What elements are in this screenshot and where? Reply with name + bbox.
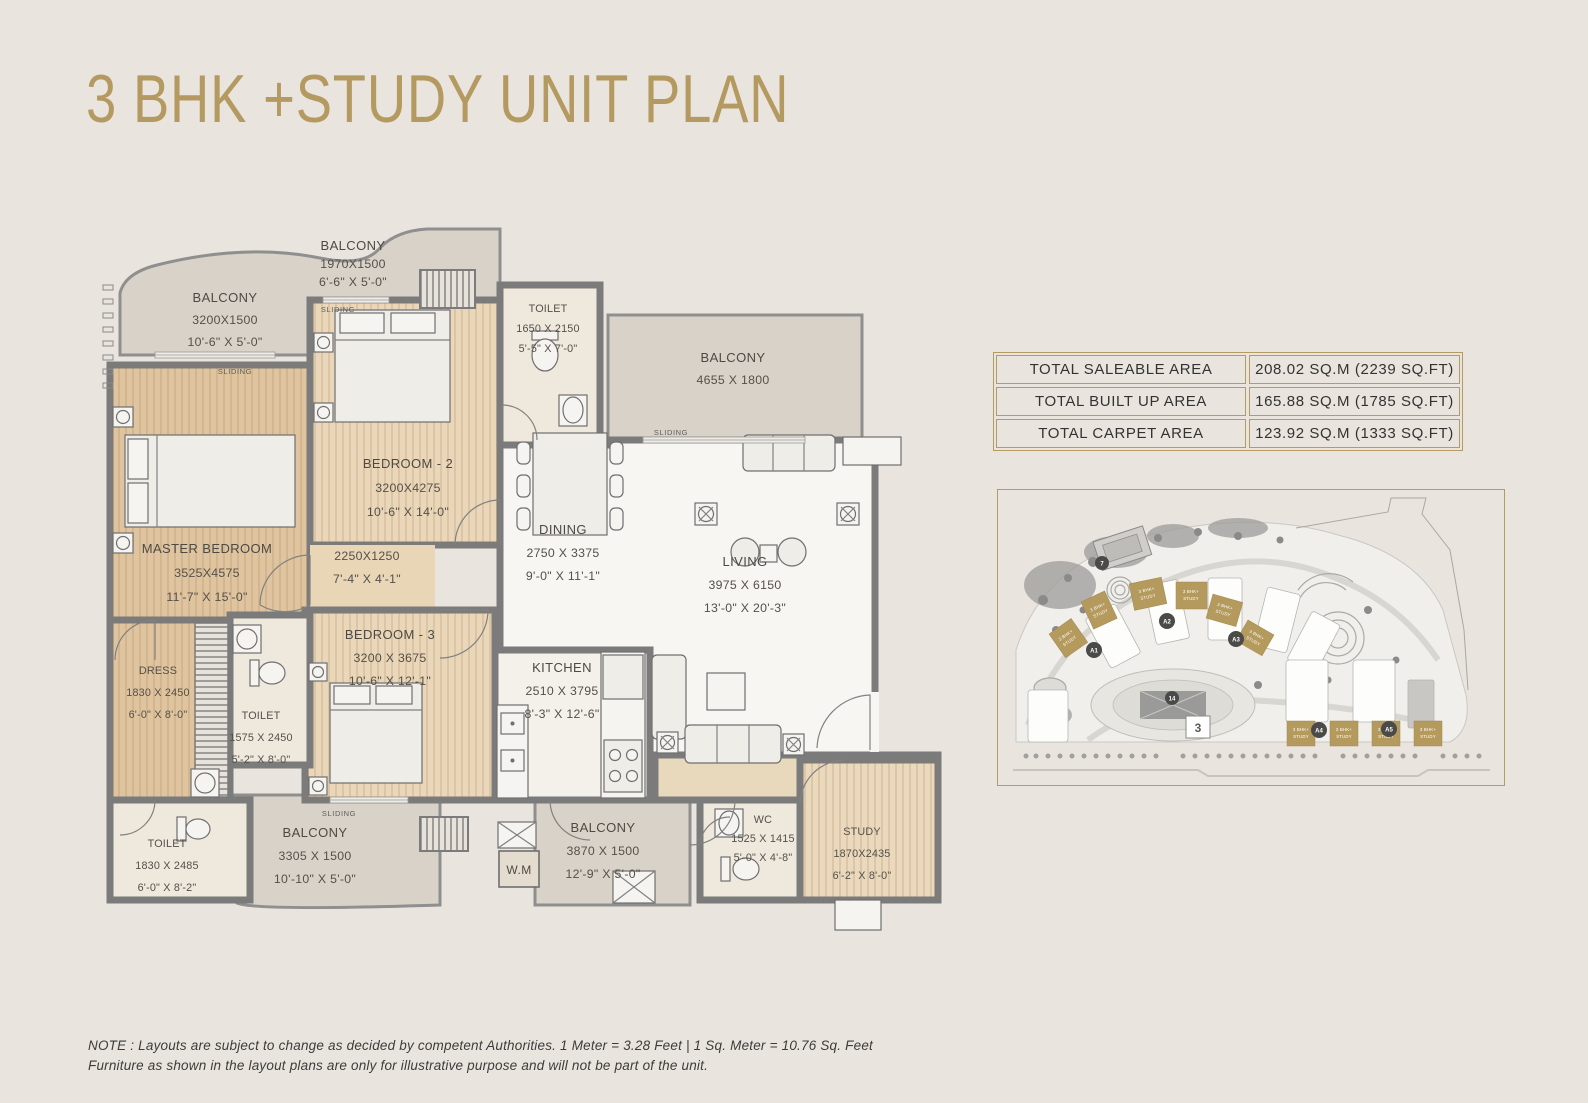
svg-text:MASTER BEDROOM: MASTER BEDROOM [142, 541, 273, 556]
svg-text:3305 X 1500: 3305 X 1500 [278, 849, 351, 863]
svg-text:7'-4" X 4'-1": 7'-4" X 4'-1" [333, 572, 401, 586]
page: { "page": { "title": "3 BHK +STUDY UNIT … [0, 0, 1588, 1103]
svg-text:1970X1500: 1970X1500 [320, 257, 386, 271]
svg-text:STUDY: STUDY [843, 826, 881, 838]
svg-text:STUDY: STUDY [1293, 734, 1309, 739]
svg-text:DINING: DINING [539, 522, 587, 537]
svg-text:6'-0" X 8'-2": 6'-0" X 8'-2" [138, 882, 197, 894]
svg-text:KITCHEN: KITCHEN [532, 660, 592, 675]
svg-text:10'-10" X 5'-0": 10'-10" X 5'-0" [274, 872, 356, 886]
svg-text:TOILET: TOILET [529, 303, 568, 315]
svg-text:TOILET: TOILET [242, 710, 281, 722]
svg-text:LIVING: LIVING [722, 554, 767, 569]
footnote-line1: NOTE : Layouts are subject to change as … [88, 1036, 873, 1056]
svg-text:11'-7" X 15'-0": 11'-7" X 15'-0" [166, 590, 247, 604]
svg-text:WC: WC [754, 814, 772, 826]
svg-text:1525 X 1415: 1525 X 1415 [731, 833, 794, 845]
svg-text:6'-6" X 5'-0": 6'-6" X 5'-0" [319, 275, 387, 289]
svg-text:SLIDING: SLIDING [218, 367, 252, 376]
footnote: NOTE : Layouts are subject to change as … [88, 1036, 873, 1077]
svg-text:BEDROOM - 3: BEDROOM - 3 [345, 627, 435, 642]
page-title: 3 BHK +STUDY UNIT PLAN [86, 60, 789, 138]
shaft-1 [498, 822, 536, 848]
svg-text:1830 X 2450: 1830 X 2450 [126, 687, 189, 699]
svg-text:14: 14 [1169, 697, 1176, 703]
road-edge [1013, 770, 1490, 776]
floor-plan-svg: BALCONY 3200X1500 10'-6" X 5'-0" BALCONY… [95, 205, 945, 940]
area-value: 208.02 SQ.M (2239 SQ.FT) [1249, 355, 1460, 384]
svg-text:1650 X 2150: 1650 X 2150 [516, 323, 579, 335]
svg-text:3525X4575: 3525X4575 [174, 566, 240, 580]
wm-label: W.M [506, 863, 531, 877]
svg-text:9'-0" X 11'-1": 9'-0" X 11'-1" [526, 569, 600, 583]
dining-table [517, 433, 623, 535]
area-summary-table: TOTAL SALEABLE AREA 208.02 SQ.M (2239 SQ… [993, 352, 1463, 451]
svg-text:TOILET: TOILET [148, 838, 187, 850]
site-plan-key-map: 3 BHK+STUDY 3 BHK+STUDY 3 BHK+STUDY 3 BH… [997, 489, 1505, 786]
svg-text:3 BHK+: 3 BHK+ [1420, 727, 1436, 732]
svg-text:10'-6" X 12'-1": 10'-6" X 12'-1" [349, 674, 431, 688]
area-label: TOTAL BUILT UP AREA [996, 387, 1246, 416]
svg-text:A2: A2 [1163, 620, 1171, 626]
area-value: 165.88 SQ.M (1785 SQ.FT) [1249, 387, 1460, 416]
svg-text:STUDY: STUDY [1336, 734, 1352, 739]
svg-text:10'-6" X 14'-0": 10'-6" X 14'-0" [367, 505, 449, 519]
svg-text:3: 3 [1195, 721, 1202, 735]
entry-step [835, 900, 881, 930]
svg-text:SLIDING: SLIDING [321, 305, 355, 314]
svg-text:10'-6" X 5'-0": 10'-6" X 5'-0" [187, 335, 262, 349]
svg-text:4655 X 1800: 4655 X 1800 [696, 373, 769, 387]
svg-text:BALCONY: BALCONY [571, 820, 636, 835]
svg-text:BALCONY: BALCONY [193, 290, 258, 305]
svg-text:A4: A4 [1315, 729, 1323, 735]
svg-text:6'-0" X 8'-0": 6'-0" X 8'-0" [129, 709, 188, 721]
svg-text:3 BHK+: 3 BHK+ [1293, 727, 1309, 732]
svg-text:3 BHK+: 3 BHK+ [1183, 589, 1199, 594]
svg-text:3200X1500: 3200X1500 [192, 313, 258, 327]
svg-text:2250X1250: 2250X1250 [334, 549, 400, 563]
area-value: 123.92 SQ.M (1333 SQ.FT) [1249, 419, 1460, 448]
svg-text:3200 X 3675: 3200 X 3675 [353, 651, 426, 665]
unit-floor-plan: BALCONY 3200X1500 10'-6" X 5'-0" BALCONY… [95, 205, 945, 940]
svg-text:STUDY: STUDY [1183, 596, 1199, 601]
site-plan-svg: 3 BHK+STUDY 3 BHK+STUDY 3 BHK+STUDY 3 BH… [998, 490, 1503, 784]
svg-text:STUDY: STUDY [1420, 734, 1436, 739]
svg-text:BALCONY: BALCONY [321, 238, 386, 253]
svg-text:1575 X 2450: 1575 X 2450 [229, 732, 292, 744]
svg-text:SLIDING: SLIDING [322, 809, 356, 818]
svg-text:3975 X 6150: 3975 X 6150 [708, 578, 781, 592]
svg-text:5'-2" X 8'-0": 5'-2" X 8'-0" [232, 754, 291, 766]
svg-text:8'-3" X 12'-6": 8'-3" X 12'-6" [524, 707, 599, 721]
svg-text:2510 X 3795: 2510 X 3795 [525, 684, 598, 698]
svg-text:6'-2" X 8'-0": 6'-2" X 8'-0" [833, 870, 892, 882]
table-row: TOTAL SALEABLE AREA 208.02 SQ.M (2239 SQ… [996, 355, 1460, 384]
svg-text:2750 X 3375: 2750 X 3375 [526, 546, 599, 560]
footnote-line2: Furniture as shown in the layout plans a… [88, 1056, 873, 1076]
svg-text:BALCONY: BALCONY [701, 350, 766, 365]
svg-text:3200X4275: 3200X4275 [375, 481, 441, 495]
svg-text:A1: A1 [1090, 649, 1098, 655]
svg-text:BALCONY: BALCONY [283, 825, 348, 840]
svg-text:3 BHK+: 3 BHK+ [1336, 727, 1352, 732]
svg-text:12'-9" X 5'-0": 12'-9" X 5'-0" [565, 867, 640, 881]
svg-text:SLIDING: SLIDING [654, 428, 688, 437]
svg-text:DRESS: DRESS [139, 665, 177, 677]
svg-text:5'-0" X 4'-8": 5'-0" X 4'-8" [734, 852, 793, 864]
svg-text:13'-0" X 20'-3": 13'-0" X 20'-3" [704, 601, 786, 615]
svg-text:3870 X 1500: 3870 X 1500 [566, 844, 639, 858]
entry-gap [870, 692, 879, 752]
svg-text:BEDROOM - 2: BEDROOM - 2 [363, 456, 453, 471]
table-row: TOTAL BUILT UP AREA 165.88 SQ.M (1785 SQ… [996, 387, 1460, 416]
central-lawn [1091, 669, 1255, 741]
area-label: TOTAL SALEABLE AREA [996, 355, 1246, 384]
ledge-bottom [420, 817, 468, 851]
svg-text:A3: A3 [1232, 638, 1240, 644]
street-trees [1024, 754, 1482, 759]
table-row: TOTAL CARPET AREA 123.92 SQ.M (1333 SQ.F… [996, 419, 1460, 448]
svg-text:A5: A5 [1385, 728, 1393, 734]
svg-text:5'-5" X 7'-0": 5'-5" X 7'-0" [519, 343, 578, 355]
svg-text:1870X2435: 1870X2435 [833, 848, 890, 860]
svg-text:1830 X 2485: 1830 X 2485 [135, 860, 198, 872]
ledge-top [420, 270, 475, 308]
area-label: TOTAL CARPET AREA [996, 419, 1246, 448]
